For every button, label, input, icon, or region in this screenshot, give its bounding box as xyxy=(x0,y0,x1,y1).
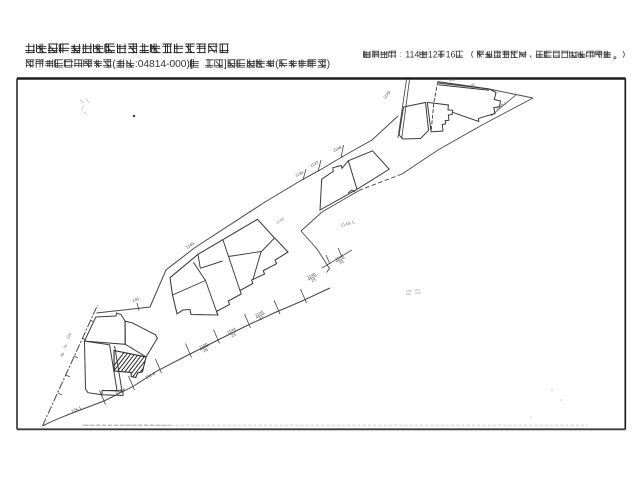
svg-text:): ) xyxy=(327,59,330,70)
svg-text:42: 42 xyxy=(471,83,475,87)
svg-text::04814-000)[: :04814-000)[ xyxy=(135,59,193,70)
svg-text:16: 16 xyxy=(446,49,456,59)
svg-text:]: ] xyxy=(224,59,227,70)
svg-text:114: 114 xyxy=(405,49,419,59)
svg-text:152: 152 xyxy=(449,77,455,82)
svg-text:12: 12 xyxy=(428,49,438,59)
svg-text:(: ( xyxy=(112,59,116,70)
svg-text:(: ( xyxy=(275,59,279,70)
